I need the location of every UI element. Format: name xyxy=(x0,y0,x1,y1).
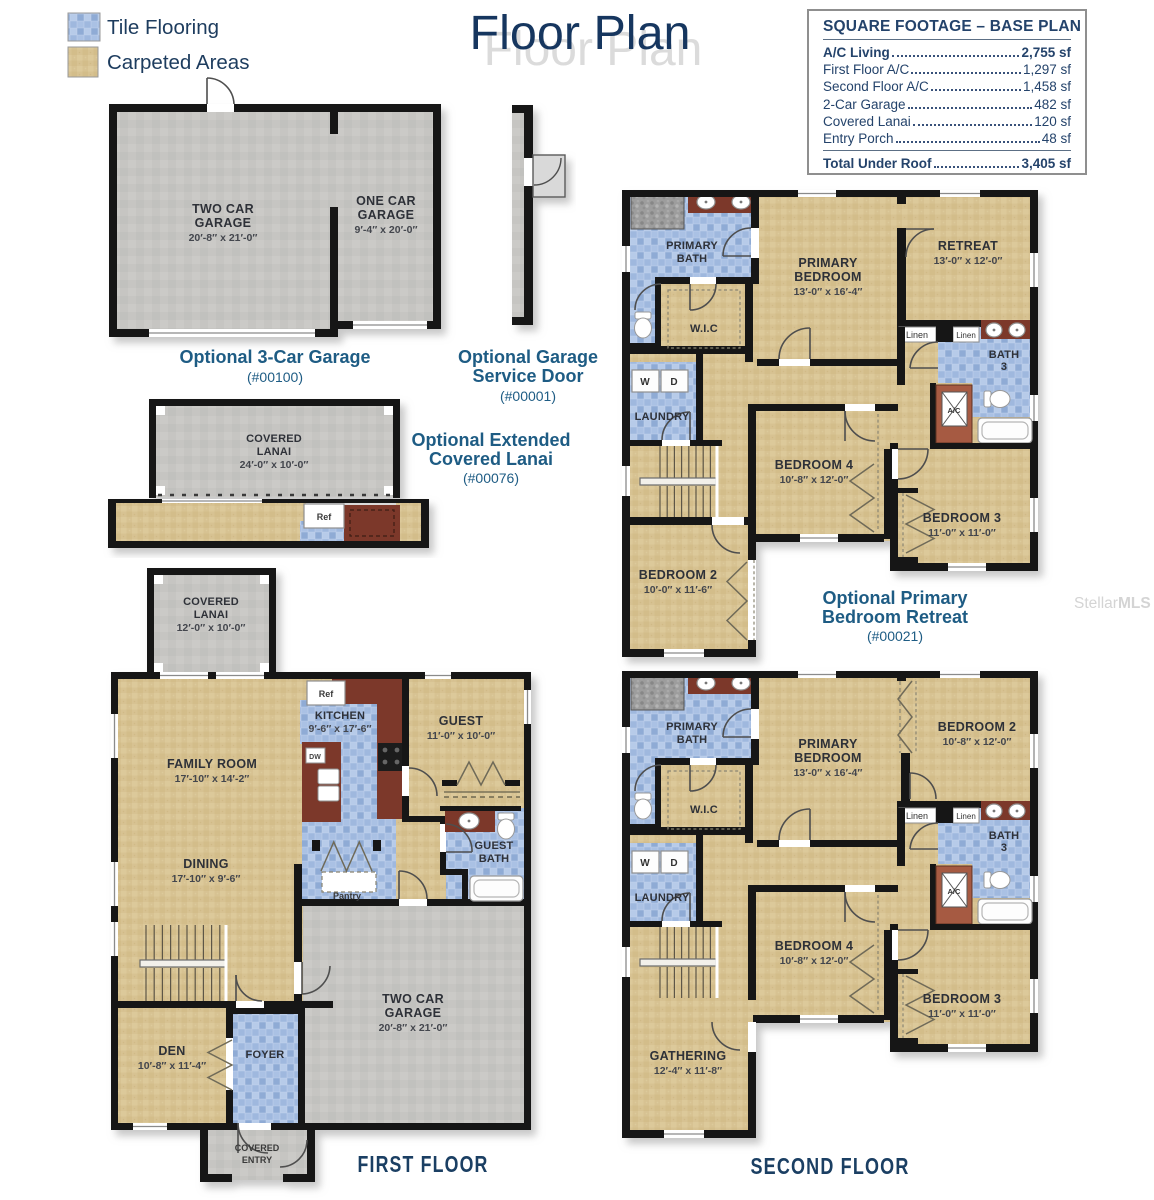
svg-text:ONE CAR: ONE CAR xyxy=(356,194,416,208)
svg-text:BEDROOM 3: BEDROOM 3 xyxy=(923,992,1001,1006)
svg-text:Linen: Linen xyxy=(906,330,928,340)
svg-text:BEDROOM 4: BEDROOM 4 xyxy=(775,939,853,953)
svg-text:BEDROOM 2: BEDROOM 2 xyxy=(639,568,717,582)
svg-text:Optional Garage: Optional Garage xyxy=(458,347,598,367)
svg-text:12′-4″ x 11′-8″: 12′-4″ x 11′-8″ xyxy=(654,1065,722,1077)
svg-text:Covered Lanai: Covered Lanai xyxy=(429,449,553,469)
svg-text:10′-8″ x 12′-0″: 10′-8″ x 12′-0″ xyxy=(780,474,849,486)
svg-text:(#00100): (#00100) xyxy=(247,369,303,385)
svg-text:W.I.C: W.I.C xyxy=(690,804,718,816)
svg-text:BATH: BATH xyxy=(989,830,1020,842)
svg-text:13′-0″ x 12′-0″: 13′-0″ x 12′-0″ xyxy=(934,255,1003,267)
svg-text:9′-6″ x 17′-6″: 9′-6″ x 17′-6″ xyxy=(309,723,372,735)
svg-text:StellarMLS: StellarMLS xyxy=(1074,595,1151,612)
svg-text:BEDROOM 4: BEDROOM 4 xyxy=(775,458,853,472)
svg-text:10′-8″ x 12′-0″: 10′-8″ x 12′-0″ xyxy=(943,736,1012,748)
svg-text:GARAGE: GARAGE xyxy=(385,1006,442,1020)
svg-text:SECOND FLOOR: SECOND FLOOR xyxy=(751,1153,910,1179)
svg-text:PRIMARY: PRIMARY xyxy=(666,721,718,733)
svg-text:GUEST: GUEST xyxy=(475,840,514,852)
svg-text:Carpeted Areas: Carpeted Areas xyxy=(107,51,249,74)
svg-text:24′-0″ x 10′-0″: 24′-0″ x 10′-0″ xyxy=(240,459,309,471)
svg-text:PRIMARY: PRIMARY xyxy=(798,737,858,751)
svg-text:D: D xyxy=(670,377,677,388)
svg-text:20′-8″ x 21′-0″: 20′-8″ x 21′-0″ xyxy=(189,232,258,244)
svg-text:13′-0″ x 16′-4″: 13′-0″ x 16′-4″ xyxy=(794,286,863,298)
svg-text:3: 3 xyxy=(1001,361,1007,373)
svg-text:LAUNDRY: LAUNDRY xyxy=(635,892,690,904)
svg-text:BEDROOM 3: BEDROOM 3 xyxy=(923,511,1001,525)
svg-text:Floor Plan: Floor Plan xyxy=(469,6,690,60)
svg-text:BEDROOM: BEDROOM xyxy=(794,751,861,765)
svg-text:Bedroom Retreat: Bedroom Retreat xyxy=(822,607,968,627)
svg-text:W.I.C: W.I.C xyxy=(690,323,718,335)
svg-text:11′-0″ x 10′-0″: 11′-0″ x 10′-0″ xyxy=(427,730,495,742)
svg-text:3: 3 xyxy=(1001,842,1007,854)
svg-text:A/C: A/C xyxy=(948,887,962,896)
svg-text:LAUNDRY: LAUNDRY xyxy=(635,411,690,423)
svg-text:Ref: Ref xyxy=(317,512,333,522)
svg-text:Linen: Linen xyxy=(956,812,976,821)
svg-text:9′-4″ x 20′-0″: 9′-4″ x 20′-0″ xyxy=(355,224,418,236)
svg-text:BEDROOM 2: BEDROOM 2 xyxy=(938,720,1016,734)
svg-text:LANAI: LANAI xyxy=(257,446,292,458)
svg-text:TWO CAR: TWO CAR xyxy=(382,992,444,1006)
svg-text:FOYER: FOYER xyxy=(246,1049,285,1061)
svg-text:ENTRY: ENTRY xyxy=(242,1155,272,1165)
svg-text:Optional Extended: Optional Extended xyxy=(411,430,570,450)
svg-text:GARAGE: GARAGE xyxy=(358,208,415,222)
svg-text:Optional 3-Car Garage: Optional 3-Car Garage xyxy=(179,347,370,367)
svg-text:COVERED: COVERED xyxy=(246,433,302,445)
svg-text:FAMILY ROOM: FAMILY ROOM xyxy=(167,757,257,771)
svg-text:(#00001): (#00001) xyxy=(500,388,556,404)
svg-text:17′-10″ x 14′-2″: 17′-10″ x 14′-2″ xyxy=(175,773,250,785)
svg-text:13′-0″ x 16′-4″: 13′-0″ x 16′-4″ xyxy=(794,767,863,779)
svg-text:GUEST: GUEST xyxy=(439,714,484,728)
svg-text:COVERED: COVERED xyxy=(235,1143,280,1153)
svg-text:20′-8″ x 21′-0″: 20′-8″ x 21′-0″ xyxy=(379,1022,448,1034)
svg-text:Linen: Linen xyxy=(906,811,928,821)
svg-text:W: W xyxy=(640,377,650,388)
svg-text:BATH: BATH xyxy=(479,853,510,865)
svg-text:Linen: Linen xyxy=(956,331,976,340)
svg-text:17′-10″ x 9′-6″: 17′-10″ x 9′-6″ xyxy=(172,873,241,885)
svg-text:RETREAT: RETREAT xyxy=(938,239,998,253)
svg-text:BEDROOM: BEDROOM xyxy=(794,270,861,284)
svg-text:COVERED: COVERED xyxy=(183,596,239,608)
svg-text:LANAI: LANAI xyxy=(194,609,229,621)
svg-text:(#00076): (#00076) xyxy=(463,470,519,486)
svg-text:PRIMARY: PRIMARY xyxy=(798,256,858,270)
svg-text:GARAGE: GARAGE xyxy=(195,216,252,230)
svg-text:Optional Primary: Optional Primary xyxy=(822,588,967,608)
svg-text:10′-0″ x 11′-6″: 10′-0″ x 11′-6″ xyxy=(644,584,712,596)
svg-text:KITCHEN: KITCHEN xyxy=(315,710,365,722)
svg-text:BATH: BATH xyxy=(677,253,708,265)
svg-text:10′-8″ x 12′-0″: 10′-8″ x 12′-0″ xyxy=(780,955,849,967)
svg-text:(#00021): (#00021) xyxy=(867,628,923,644)
svg-text:TWO CAR: TWO CAR xyxy=(192,202,254,216)
svg-text:Tile Flooring: Tile Flooring xyxy=(107,16,219,39)
svg-text:GATHERING: GATHERING xyxy=(650,1049,727,1063)
svg-text:10′-8″ x 11′-4″: 10′-8″ x 11′-4″ xyxy=(138,1060,206,1072)
svg-text:Pantry: Pantry xyxy=(333,891,361,901)
svg-text:W: W xyxy=(640,858,650,869)
svg-text:12′-0″ x 10′-0″: 12′-0″ x 10′-0″ xyxy=(177,622,246,634)
svg-text:DINING: DINING xyxy=(183,857,229,871)
svg-text:D: D xyxy=(670,858,677,869)
svg-text:Ref: Ref xyxy=(319,689,335,699)
svg-text:BATH: BATH xyxy=(677,734,708,746)
svg-text:DW: DW xyxy=(309,754,321,761)
svg-text:A/C: A/C xyxy=(948,406,962,415)
svg-text:11′-0″ x 11′-0″: 11′-0″ x 11′-0″ xyxy=(928,527,996,539)
svg-text:FIRST FLOOR: FIRST FLOOR xyxy=(358,1151,489,1177)
svg-text:PRIMARY: PRIMARY xyxy=(666,240,718,252)
svg-text:BATH: BATH xyxy=(989,349,1020,361)
svg-text:11′-0″ x 11′-0″: 11′-0″ x 11′-0″ xyxy=(928,1008,996,1020)
svg-text:Service Door: Service Door xyxy=(472,366,583,386)
svg-text:DEN: DEN xyxy=(158,1044,185,1058)
